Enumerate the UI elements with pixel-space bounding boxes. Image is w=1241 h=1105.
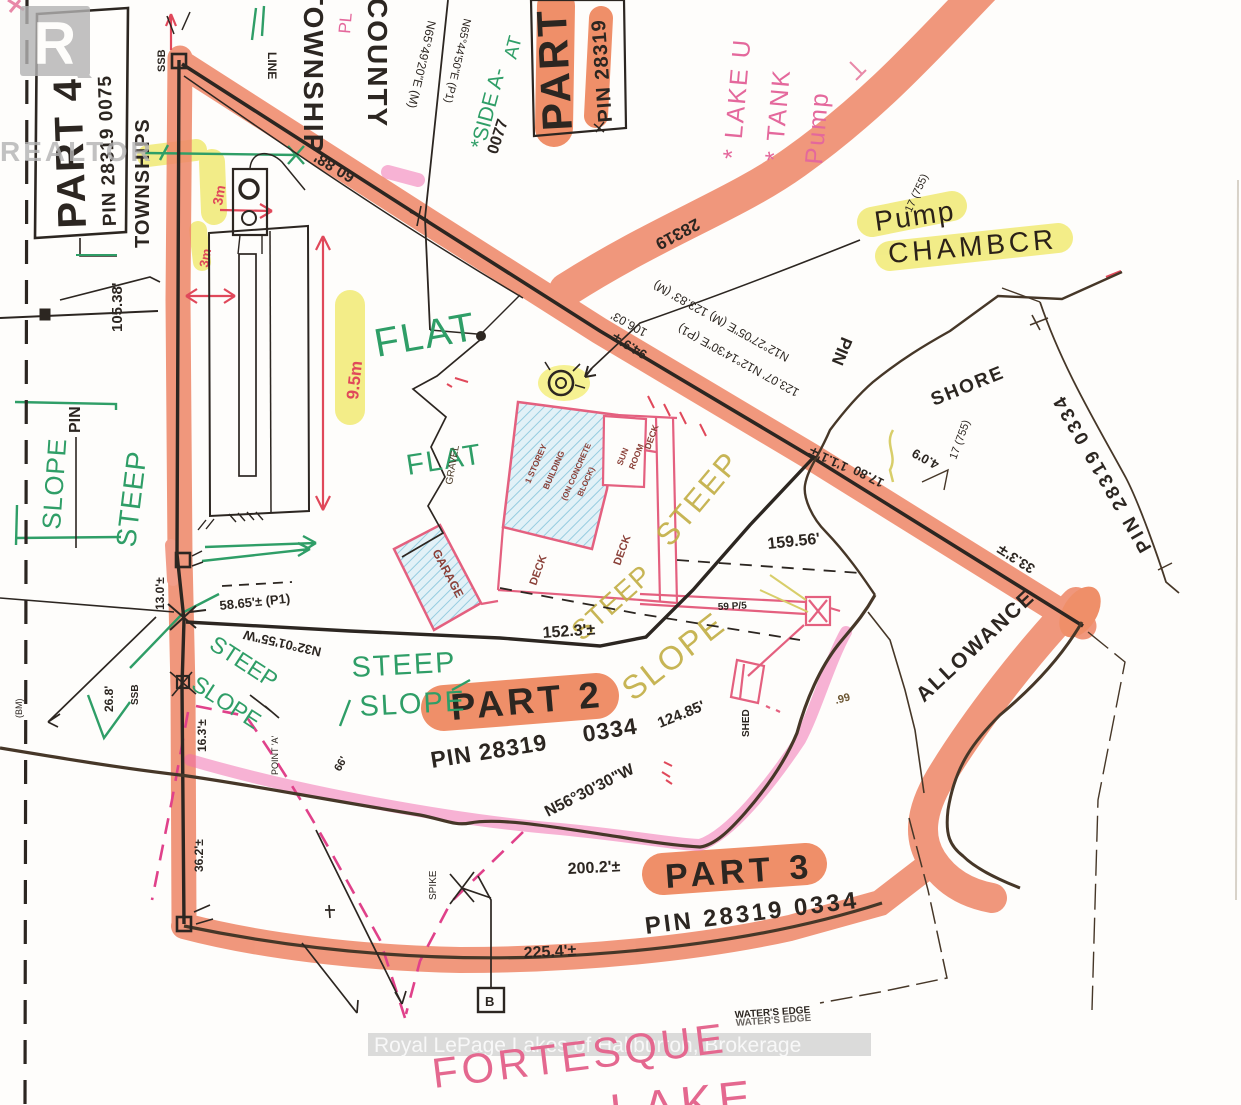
svg-text:PL: PL — [335, 12, 356, 34]
svg-text:105.38': 105.38' — [109, 283, 126, 332]
svg-text:POINT 'A': POINT 'A' — [270, 735, 280, 775]
svg-text:R: R — [33, 10, 76, 77]
svg-text:16.3'±: 16.3'± — [195, 719, 209, 752]
svg-text:PART: PART — [528, 6, 581, 132]
svg-text:(BM): (BM) — [14, 699, 24, 719]
svg-text:SSB: SSB — [130, 684, 141, 705]
svg-text:SSB: SSB — [156, 49, 168, 72]
svg-text:225.4'±: 225.4'± — [523, 942, 577, 962]
svg-text:SPIKE: SPIKE — [428, 870, 439, 900]
svg-text:B: B — [485, 994, 494, 1009]
svg-text:9.5m: 9.5m — [343, 360, 366, 401]
svg-text:26.8': 26.8' — [102, 686, 116, 712]
svg-text:COUNTY: COUNTY — [362, 0, 393, 128]
svg-text:200.2'±: 200.2'± — [567, 858, 621, 878]
svg-text:STEEP: STEEP — [351, 647, 458, 684]
svg-text:LINE: LINE — [265, 52, 279, 79]
svg-text:TOWNSHIP: TOWNSHIP — [298, 0, 329, 154]
svg-text:SLOPE: SLOPE — [359, 685, 467, 723]
svg-text:SHED: SHED — [741, 709, 752, 737]
svg-text:59 P/5: 59 P/5 — [718, 600, 748, 613]
svg-text:13.0'±: 13.0'± — [153, 577, 167, 610]
svg-text:SLOPE: SLOPE — [36, 437, 72, 531]
svg-text:REALTOR: REALTOR — [0, 136, 154, 167]
svg-text:PIN: PIN — [67, 406, 84, 433]
svg-text:36.2'±: 36.2'± — [192, 839, 206, 872]
